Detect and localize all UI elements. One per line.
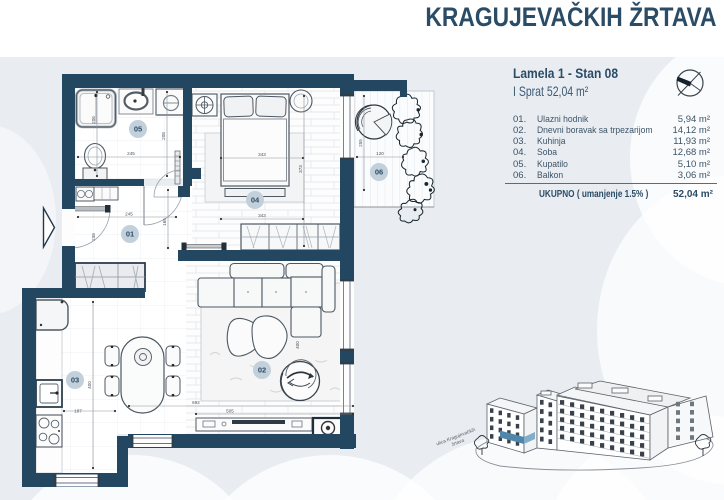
svg-text:04: 04: [251, 196, 260, 205]
svg-text:245: 245: [127, 151, 135, 156]
svg-text:343: 343: [258, 213, 266, 218]
svg-text:165: 165: [162, 218, 167, 226]
svg-text:238: 238: [91, 233, 96, 241]
svg-text:505: 505: [226, 409, 234, 414]
svg-text:255: 255: [358, 139, 363, 147]
svg-text:06: 06: [375, 168, 383, 177]
svg-text:692: 692: [192, 400, 200, 405]
svg-text:245: 245: [125, 212, 133, 217]
svg-text:206: 206: [91, 116, 96, 124]
svg-text:400: 400: [87, 381, 92, 389]
svg-text:400: 400: [295, 341, 300, 349]
svg-text:02: 02: [258, 366, 266, 375]
svg-text:03: 03: [71, 376, 79, 385]
svg-text:187: 187: [74, 409, 82, 414]
svg-text:120: 120: [376, 151, 384, 156]
svg-text:208: 208: [161, 132, 166, 140]
svg-text:343: 343: [258, 152, 266, 157]
svg-text:01: 01: [126, 230, 134, 239]
svg-text:373: 373: [298, 165, 303, 173]
svg-text:05: 05: [134, 125, 142, 134]
